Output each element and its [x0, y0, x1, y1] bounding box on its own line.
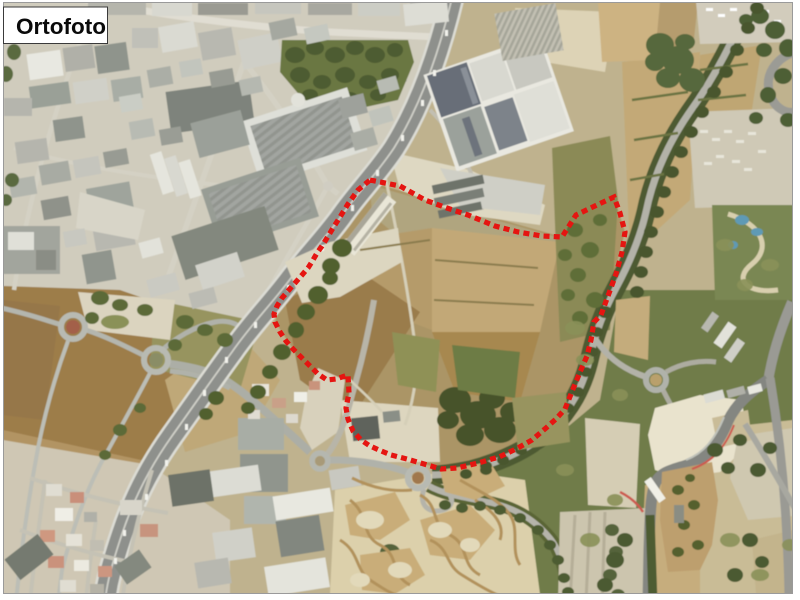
svg-text:Ortofoto: Ortofoto	[16, 14, 106, 39]
